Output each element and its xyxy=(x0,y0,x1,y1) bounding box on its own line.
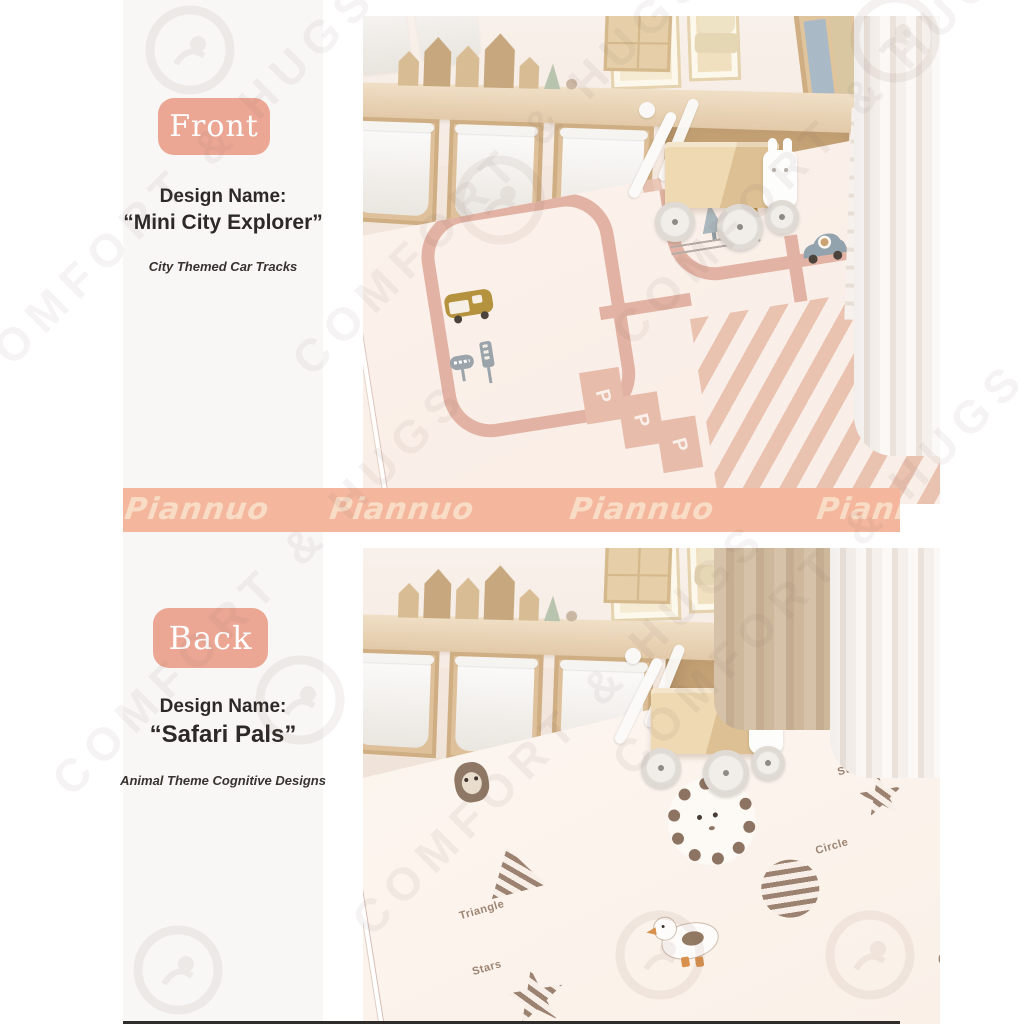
cart-wheel xyxy=(641,748,681,788)
lantern-dome xyxy=(699,16,736,34)
back-badge: Back xyxy=(153,608,268,668)
brand-wordmark: Piannuo xyxy=(815,492,900,527)
house-figurine xyxy=(519,589,540,621)
ball-toy xyxy=(566,611,577,622)
house-figurine xyxy=(423,37,452,87)
house-figurine xyxy=(484,565,516,620)
brand-divider-band: Piannuo Piannuo Piannuo Piannuo xyxy=(123,488,900,532)
storage-bin xyxy=(363,124,431,217)
goose-icon xyxy=(652,910,722,965)
front-badge-label: Front xyxy=(169,109,259,144)
beige-curtain xyxy=(714,548,844,730)
front-design-name: “Mini City Explorer” xyxy=(103,211,343,235)
cart-box xyxy=(665,142,779,208)
parking-letter: P xyxy=(590,386,616,405)
house-figurine xyxy=(398,583,419,618)
mini-tree-figurine xyxy=(544,63,561,89)
shape-label: Stars xyxy=(471,958,503,978)
striped-star-icon xyxy=(855,771,907,822)
mini-drawer-cabinet xyxy=(603,548,672,604)
shape-label: Triangle xyxy=(458,898,506,922)
back-info-text: Design Name: “Safari Pals” Animal Theme … xyxy=(103,696,343,788)
storage-bin xyxy=(363,656,431,749)
goose-feet xyxy=(681,956,690,967)
house-figurine xyxy=(423,569,452,619)
front-badge: Front xyxy=(158,98,270,155)
cart-knob xyxy=(625,648,641,664)
cart-wheel xyxy=(765,200,799,234)
front-photo: P P P P P P xyxy=(363,16,940,504)
bunny-eyes xyxy=(772,168,776,172)
front-design-label: Design Name: xyxy=(103,186,343,208)
book-in-cart xyxy=(691,123,735,160)
shape-label: Circle xyxy=(814,836,850,857)
brand-wordmark: Piannuo xyxy=(328,492,477,527)
mini-tree-figurine xyxy=(544,595,561,621)
cart-wheel xyxy=(655,202,695,242)
back-info-panel: Back Design Name: “Safari Pals” Animal T… xyxy=(123,532,323,1021)
cart-wheel xyxy=(703,750,749,796)
back-design-name: “Safari Pals” xyxy=(103,721,343,749)
book-in-cart xyxy=(724,126,761,159)
lantern-base xyxy=(694,33,738,53)
product-image: Front Design Name: “Mini City Explorer” … xyxy=(0,0,1024,1024)
dotted-wreath-icon xyxy=(933,916,940,1003)
brand-wordmark: Piannuo xyxy=(568,492,717,527)
back-design-label: Design Name: xyxy=(103,696,343,718)
parking-letter: P xyxy=(628,411,654,430)
cubby xyxy=(363,648,440,758)
cart-wheel xyxy=(717,204,763,250)
back-tagline: Animal Theme Cognitive Designs xyxy=(103,773,343,788)
mini-drawer-cabinet xyxy=(603,16,672,72)
back-badge-label: Back xyxy=(169,619,253,657)
cubby xyxy=(363,116,440,226)
ball-toy xyxy=(566,79,577,90)
toy-cart xyxy=(635,104,799,246)
lantern-lamp xyxy=(694,16,740,76)
owl-icon xyxy=(452,760,492,805)
car-with-bear-icon xyxy=(796,228,850,267)
front-info-panel: Front Design Name: “Mini City Explorer” … xyxy=(123,0,323,488)
brand-wordmark: Piannuo xyxy=(123,492,272,527)
curtain xyxy=(854,16,940,456)
striped-circle-icon xyxy=(757,855,823,921)
back-photo: Square xyxy=(363,548,940,1024)
content-area: Front Design Name: “Mini City Explorer” … xyxy=(123,0,900,1024)
front-tagline: City Themed Car Tracks xyxy=(103,259,343,274)
front-info-text: Design Name: “Mini City Explorer” City T… xyxy=(103,186,343,274)
house-figurine xyxy=(455,577,480,619)
parking-letter: P xyxy=(667,435,693,454)
house-figurine xyxy=(455,45,480,87)
wooden-house-figurines xyxy=(398,564,579,621)
house-figurine xyxy=(398,51,419,86)
striped-star-icon xyxy=(501,965,569,1024)
cart-wheel xyxy=(751,746,785,780)
cart-knob xyxy=(639,102,655,118)
striped-triangle-icon xyxy=(480,840,546,899)
wooden-house-figurines xyxy=(398,32,579,89)
house-figurine xyxy=(519,57,540,89)
curtain xyxy=(830,548,940,778)
parking-block: P xyxy=(656,416,704,474)
house-figurine xyxy=(484,33,516,88)
